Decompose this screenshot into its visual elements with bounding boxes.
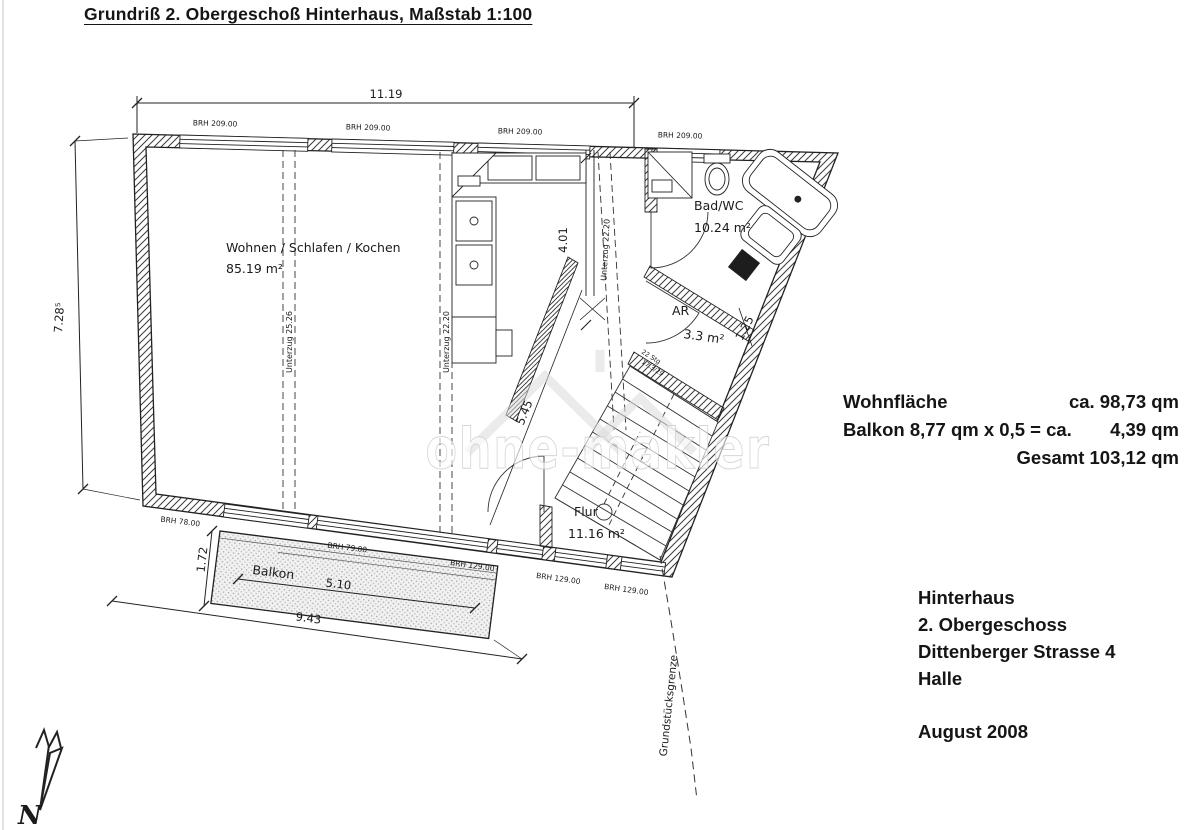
window: [180, 135, 308, 151]
dim-balcony-total: 9.43: [295, 609, 322, 626]
address-block: Hinterhaus 2. Obergeschoss Dittenberger …: [918, 584, 1115, 745]
window: [332, 139, 454, 155]
window-label: BRH 129.00: [536, 571, 582, 586]
plan-date: August 2008: [918, 718, 1115, 745]
dim-top: 11.19: [370, 87, 403, 101]
area-summary: Wohnfläche ca. 98,73 qm Balkon 8,77 qm x…: [843, 388, 1179, 472]
address-line: Halle: [918, 665, 1115, 692]
stove-icon: [536, 156, 580, 180]
dim-left: 7.28⁵: [51, 302, 67, 334]
property-boundary-label: Grundstücksgrenze: [658, 654, 681, 757]
hall-label: Flur: [574, 504, 599, 519]
beam-label: Unterzug 22.20: [599, 219, 611, 281]
storage-area: 3.3 m²: [683, 326, 726, 347]
summary-label: Wohnfläche: [843, 388, 948, 416]
summary-total: Gesamt 103,12 qm: [1017, 444, 1179, 472]
beam-label: Unterzug 25.26: [285, 311, 294, 373]
north-arrow: N: [17, 730, 62, 830]
window-label: BRH 78.00: [160, 515, 201, 529]
window: [554, 548, 607, 568]
living-room-label: Wohnen / Schlafen / Kochen: [226, 240, 401, 255]
window-label: BRH 129.00: [604, 582, 650, 597]
window: [496, 540, 543, 559]
window-label: BRH 209.00: [346, 122, 391, 132]
stove-icon: [488, 156, 532, 180]
watermark-text: ohne-makler: [426, 417, 771, 482]
window-label: BRH 209.00: [498, 126, 543, 136]
bathroom-fixtures: [648, 144, 843, 281]
toilet-icon: [704, 154, 730, 195]
beam-label: Unterzug 22.20: [442, 311, 451, 373]
window: [223, 504, 309, 528]
north-label: N: [17, 801, 43, 830]
shower-icon: [648, 152, 692, 198]
storage-label: AR: [672, 303, 690, 318]
summary-balcony-value: 4,39 qm: [1110, 416, 1179, 444]
window-label: BRH 209.00: [658, 130, 703, 140]
summary-value: ca. 98,73 qm: [1069, 388, 1179, 416]
hall-area: 11.16 m²: [568, 526, 625, 541]
address-line: Dittenberger Strasse 4: [918, 638, 1115, 665]
address-line: Hinterhaus: [918, 584, 1115, 611]
shower-tray-icon: [729, 250, 760, 281]
address-line: 2. Obergeschoss: [918, 611, 1115, 638]
living-room-area: 85.19 m²: [226, 261, 283, 276]
summary-balcony-label: Balkon 8,77 qm x 0,5 = ca.: [843, 416, 1072, 444]
bath-label: Bad/WC: [694, 198, 744, 213]
bath-area: 10.24 m²: [694, 220, 751, 235]
dim-kitchen: 4.01: [556, 227, 570, 253]
window-label: BRH 209.00: [193, 118, 238, 128]
floor-plan-page: Grundriß 2. Obergeschoß Hinterhaus, Maßs…: [0, 0, 1198, 830]
